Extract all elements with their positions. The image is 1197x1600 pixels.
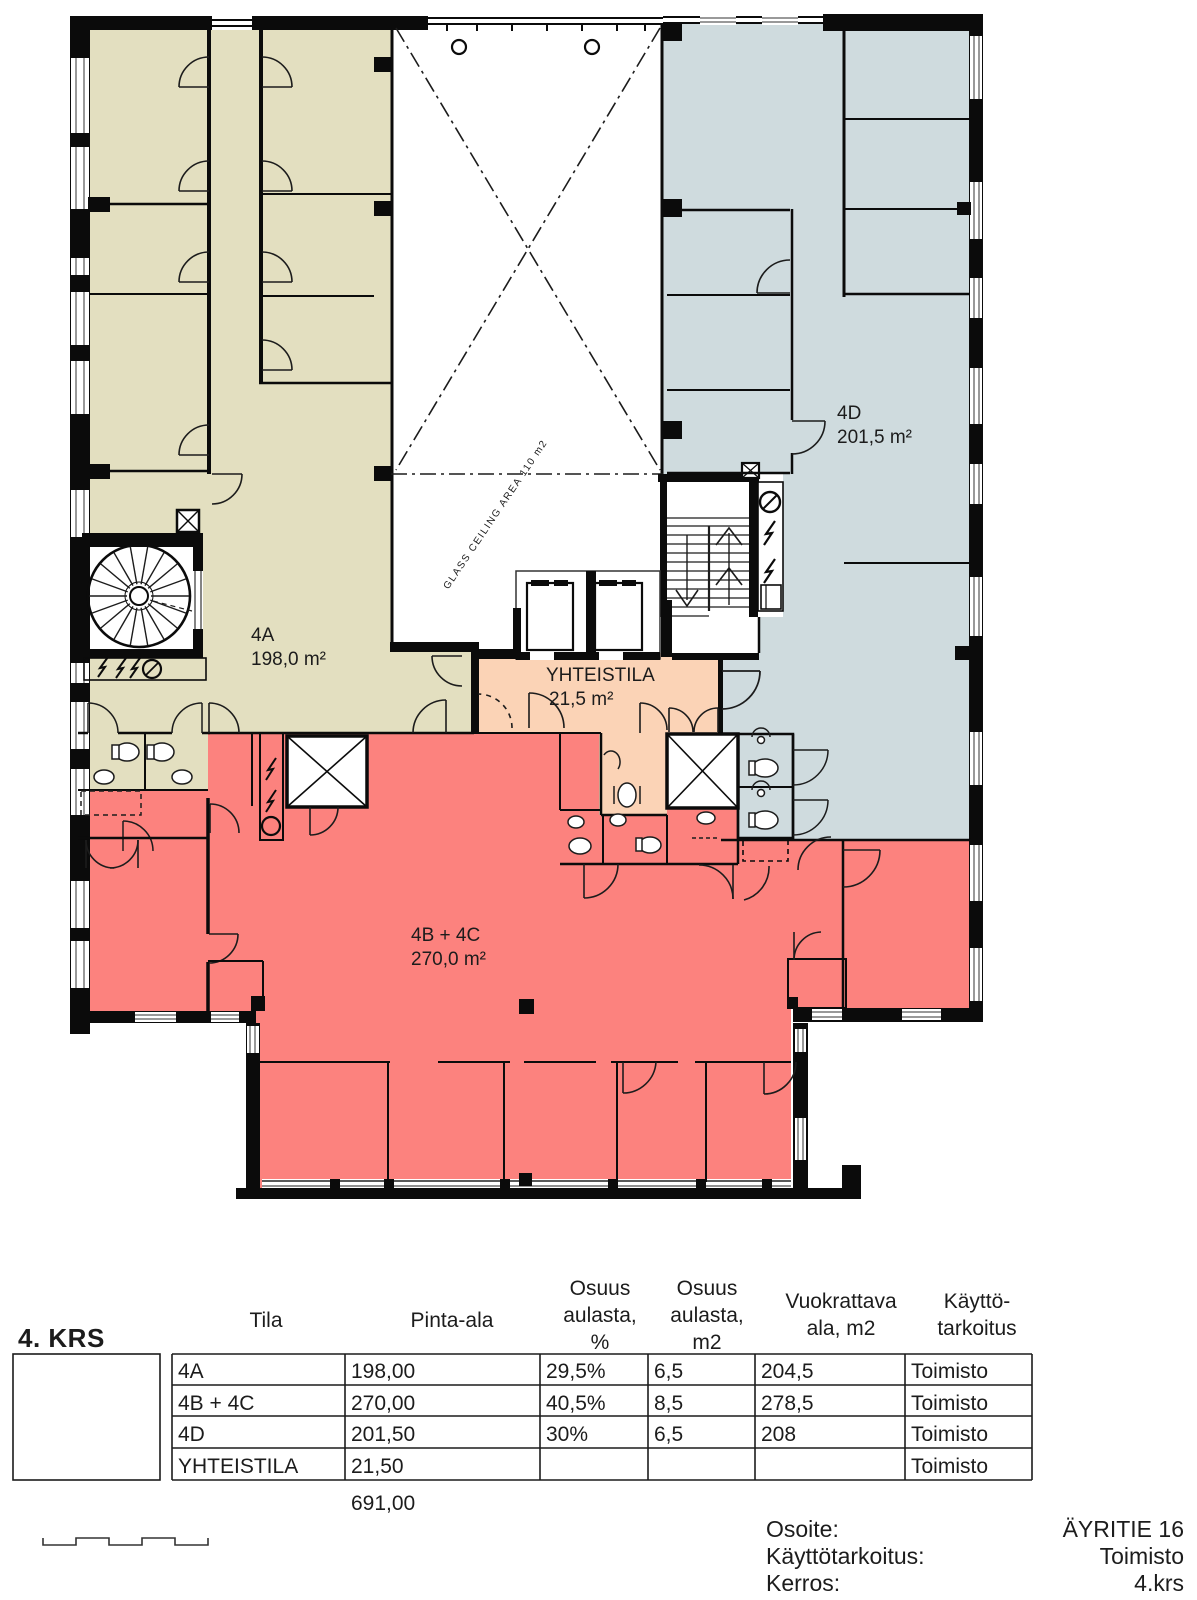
svg-text:204,5: 204,5	[761, 1360, 814, 1383]
svg-text:tarkoitus: tarkoitus	[937, 1317, 1016, 1340]
svg-text:198,00: 198,00	[351, 1360, 415, 1383]
svg-text:Toimisto: Toimisto	[1100, 1543, 1184, 1569]
svg-text:aulasta,: aulasta,	[670, 1304, 744, 1327]
svg-text:6,5: 6,5	[654, 1360, 683, 1383]
svg-text:29,5%: 29,5%	[546, 1360, 606, 1383]
svg-text:198,0 m²: 198,0 m²	[251, 649, 326, 670]
svg-text:aulasta,: aulasta,	[563, 1304, 637, 1327]
svg-text:Toimisto: Toimisto	[911, 1392, 988, 1415]
svg-text:208: 208	[761, 1423, 796, 1446]
svg-text:4.krs: 4.krs	[1134, 1570, 1184, 1596]
svg-text:ala, m2: ala, m2	[807, 1317, 876, 1340]
svg-text:Osoite:: Osoite:	[766, 1516, 839, 1542]
svg-text:30%: 30%	[546, 1423, 588, 1446]
svg-text:Kerros:: Kerros:	[766, 1570, 840, 1596]
svg-text:m2: m2	[692, 1331, 721, 1354]
svg-text:YHTEISTILA: YHTEISTILA	[178, 1455, 298, 1478]
svg-text:270,0 m²: 270,0 m²	[411, 949, 486, 970]
svg-text:Käyttötarkoitus:: Käyttötarkoitus:	[766, 1543, 925, 1569]
svg-text:691,00: 691,00	[351, 1492, 415, 1515]
svg-text:278,5: 278,5	[761, 1392, 814, 1415]
svg-text:Toimisto: Toimisto	[911, 1423, 988, 1446]
svg-text:4B + 4C: 4B + 4C	[178, 1392, 254, 1415]
svg-text:Osuus: Osuus	[677, 1277, 738, 1300]
svg-text:21,50: 21,50	[351, 1455, 404, 1478]
svg-text:4A: 4A	[251, 625, 275, 646]
svg-text:270,00: 270,00	[351, 1392, 415, 1415]
svg-text:4A: 4A	[178, 1360, 204, 1383]
svg-text:4. KRS: 4. KRS	[18, 1323, 105, 1353]
svg-text:Osuus: Osuus	[570, 1277, 631, 1300]
svg-text:201,5 m²: 201,5 m²	[837, 427, 912, 448]
svg-text:Pinta-ala: Pinta-ala	[411, 1309, 494, 1332]
svg-text:Toimisto: Toimisto	[911, 1455, 988, 1478]
svg-text:YHTEISTILA: YHTEISTILA	[546, 665, 655, 686]
svg-text:6,5: 6,5	[654, 1423, 683, 1446]
svg-text:Vuokrattava: Vuokrattava	[785, 1290, 897, 1313]
svg-text:40,5%: 40,5%	[546, 1392, 606, 1415]
svg-text:201,50: 201,50	[351, 1423, 415, 1446]
svg-text:4B + 4C: 4B + 4C	[411, 925, 480, 946]
svg-text:4D: 4D	[178, 1423, 205, 1446]
svg-text:Toimisto: Toimisto	[911, 1360, 988, 1383]
svg-text:8,5: 8,5	[654, 1392, 683, 1415]
svg-text:Käyttö-: Käyttö-	[944, 1290, 1011, 1313]
svg-text:ÄYRITIE 16: ÄYRITIE 16	[1063, 1516, 1184, 1542]
svg-text:%: %	[591, 1331, 610, 1354]
svg-text:21,5 m²: 21,5 m²	[549, 689, 613, 710]
svg-text:Tila: Tila	[249, 1309, 282, 1332]
svg-text:4D: 4D	[837, 403, 861, 424]
